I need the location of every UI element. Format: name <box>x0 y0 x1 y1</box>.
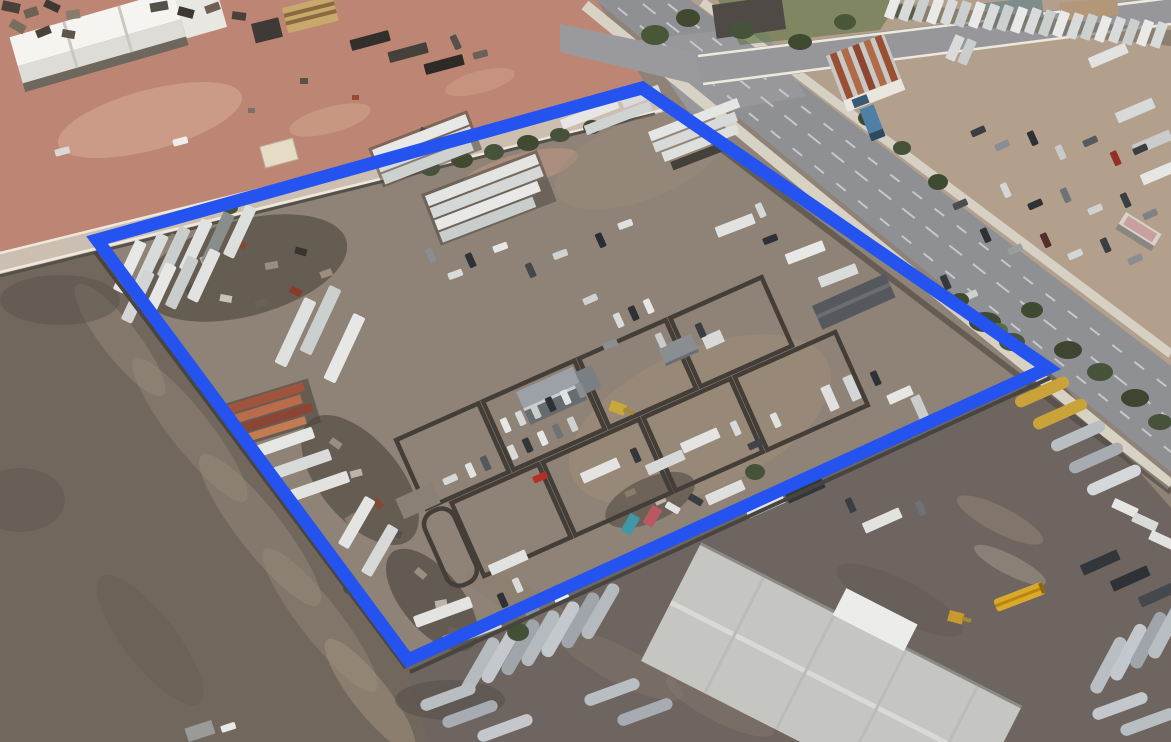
yard-tree-1 <box>745 464 765 480</box>
screenshot-root <box>0 0 1171 742</box>
aerial-photo <box>0 0 1171 742</box>
